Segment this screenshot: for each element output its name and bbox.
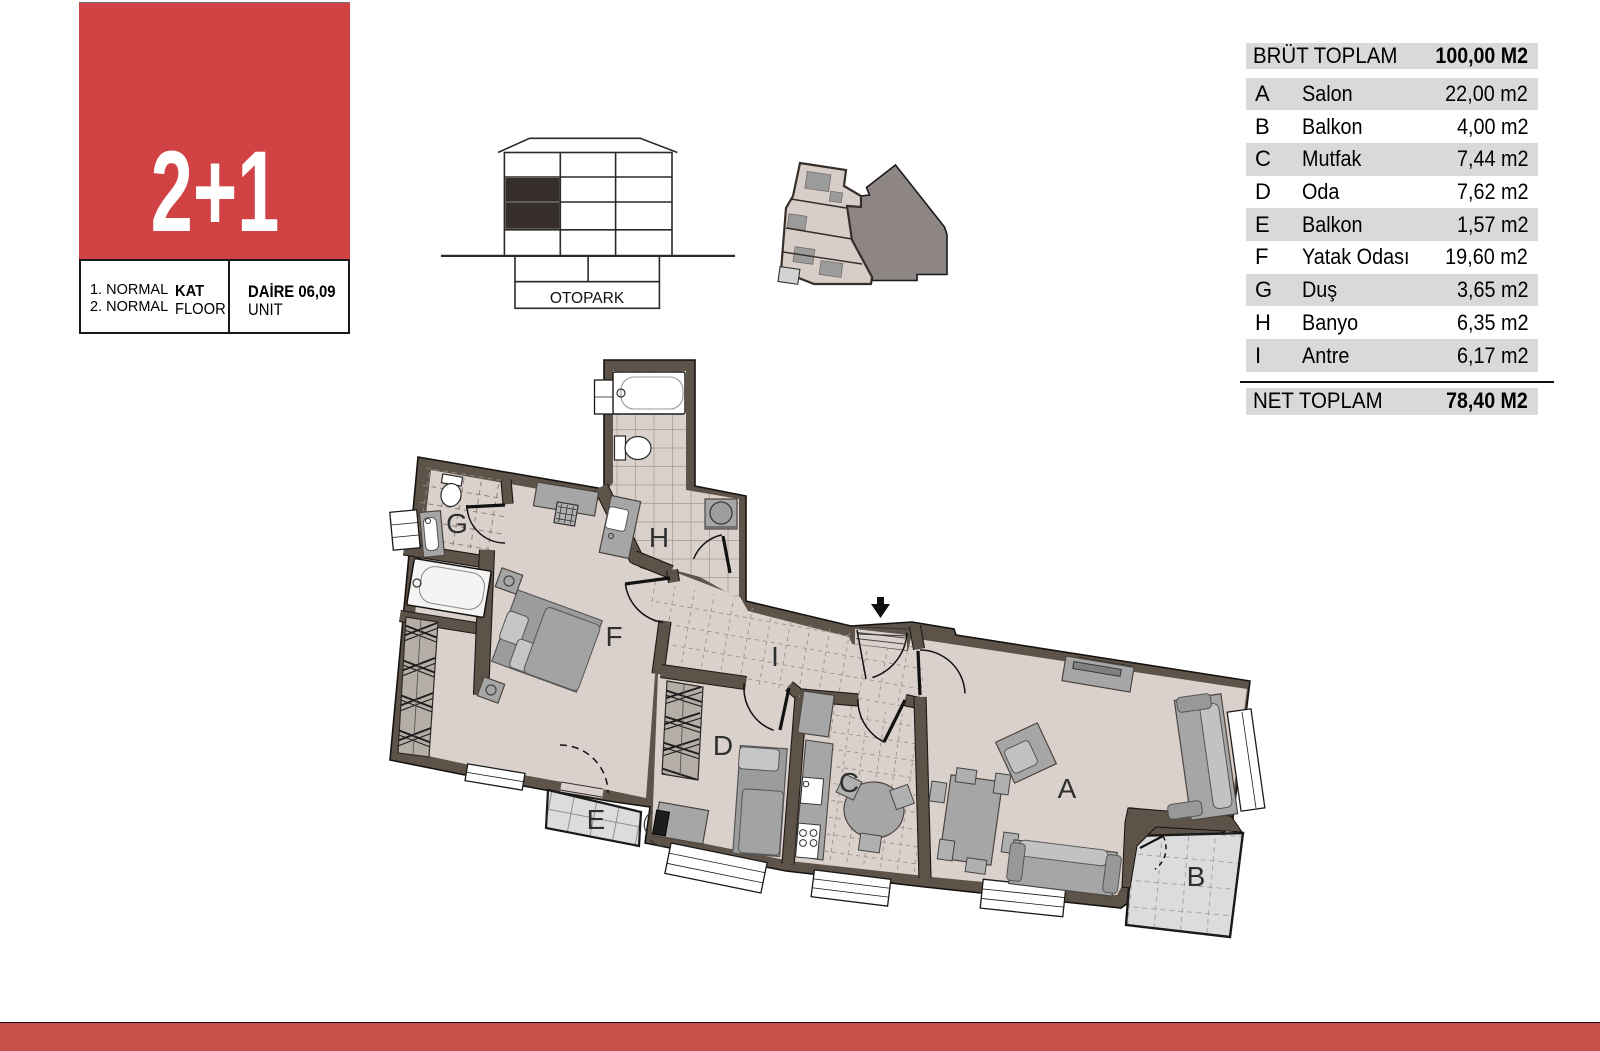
svg-text:D: D: [713, 730, 733, 761]
svg-text:F: F: [605, 621, 622, 652]
svg-text:A: A: [1058, 773, 1077, 804]
svg-text:G: G: [446, 508, 468, 539]
svg-text:OTOPARK: OTOPARK: [550, 290, 625, 307]
svg-text:B: B: [1187, 861, 1206, 892]
svg-text:C: C: [839, 767, 859, 798]
svg-text:E: E: [587, 804, 606, 835]
svg-text:H: H: [649, 522, 669, 553]
svg-text:I: I: [771, 641, 779, 672]
